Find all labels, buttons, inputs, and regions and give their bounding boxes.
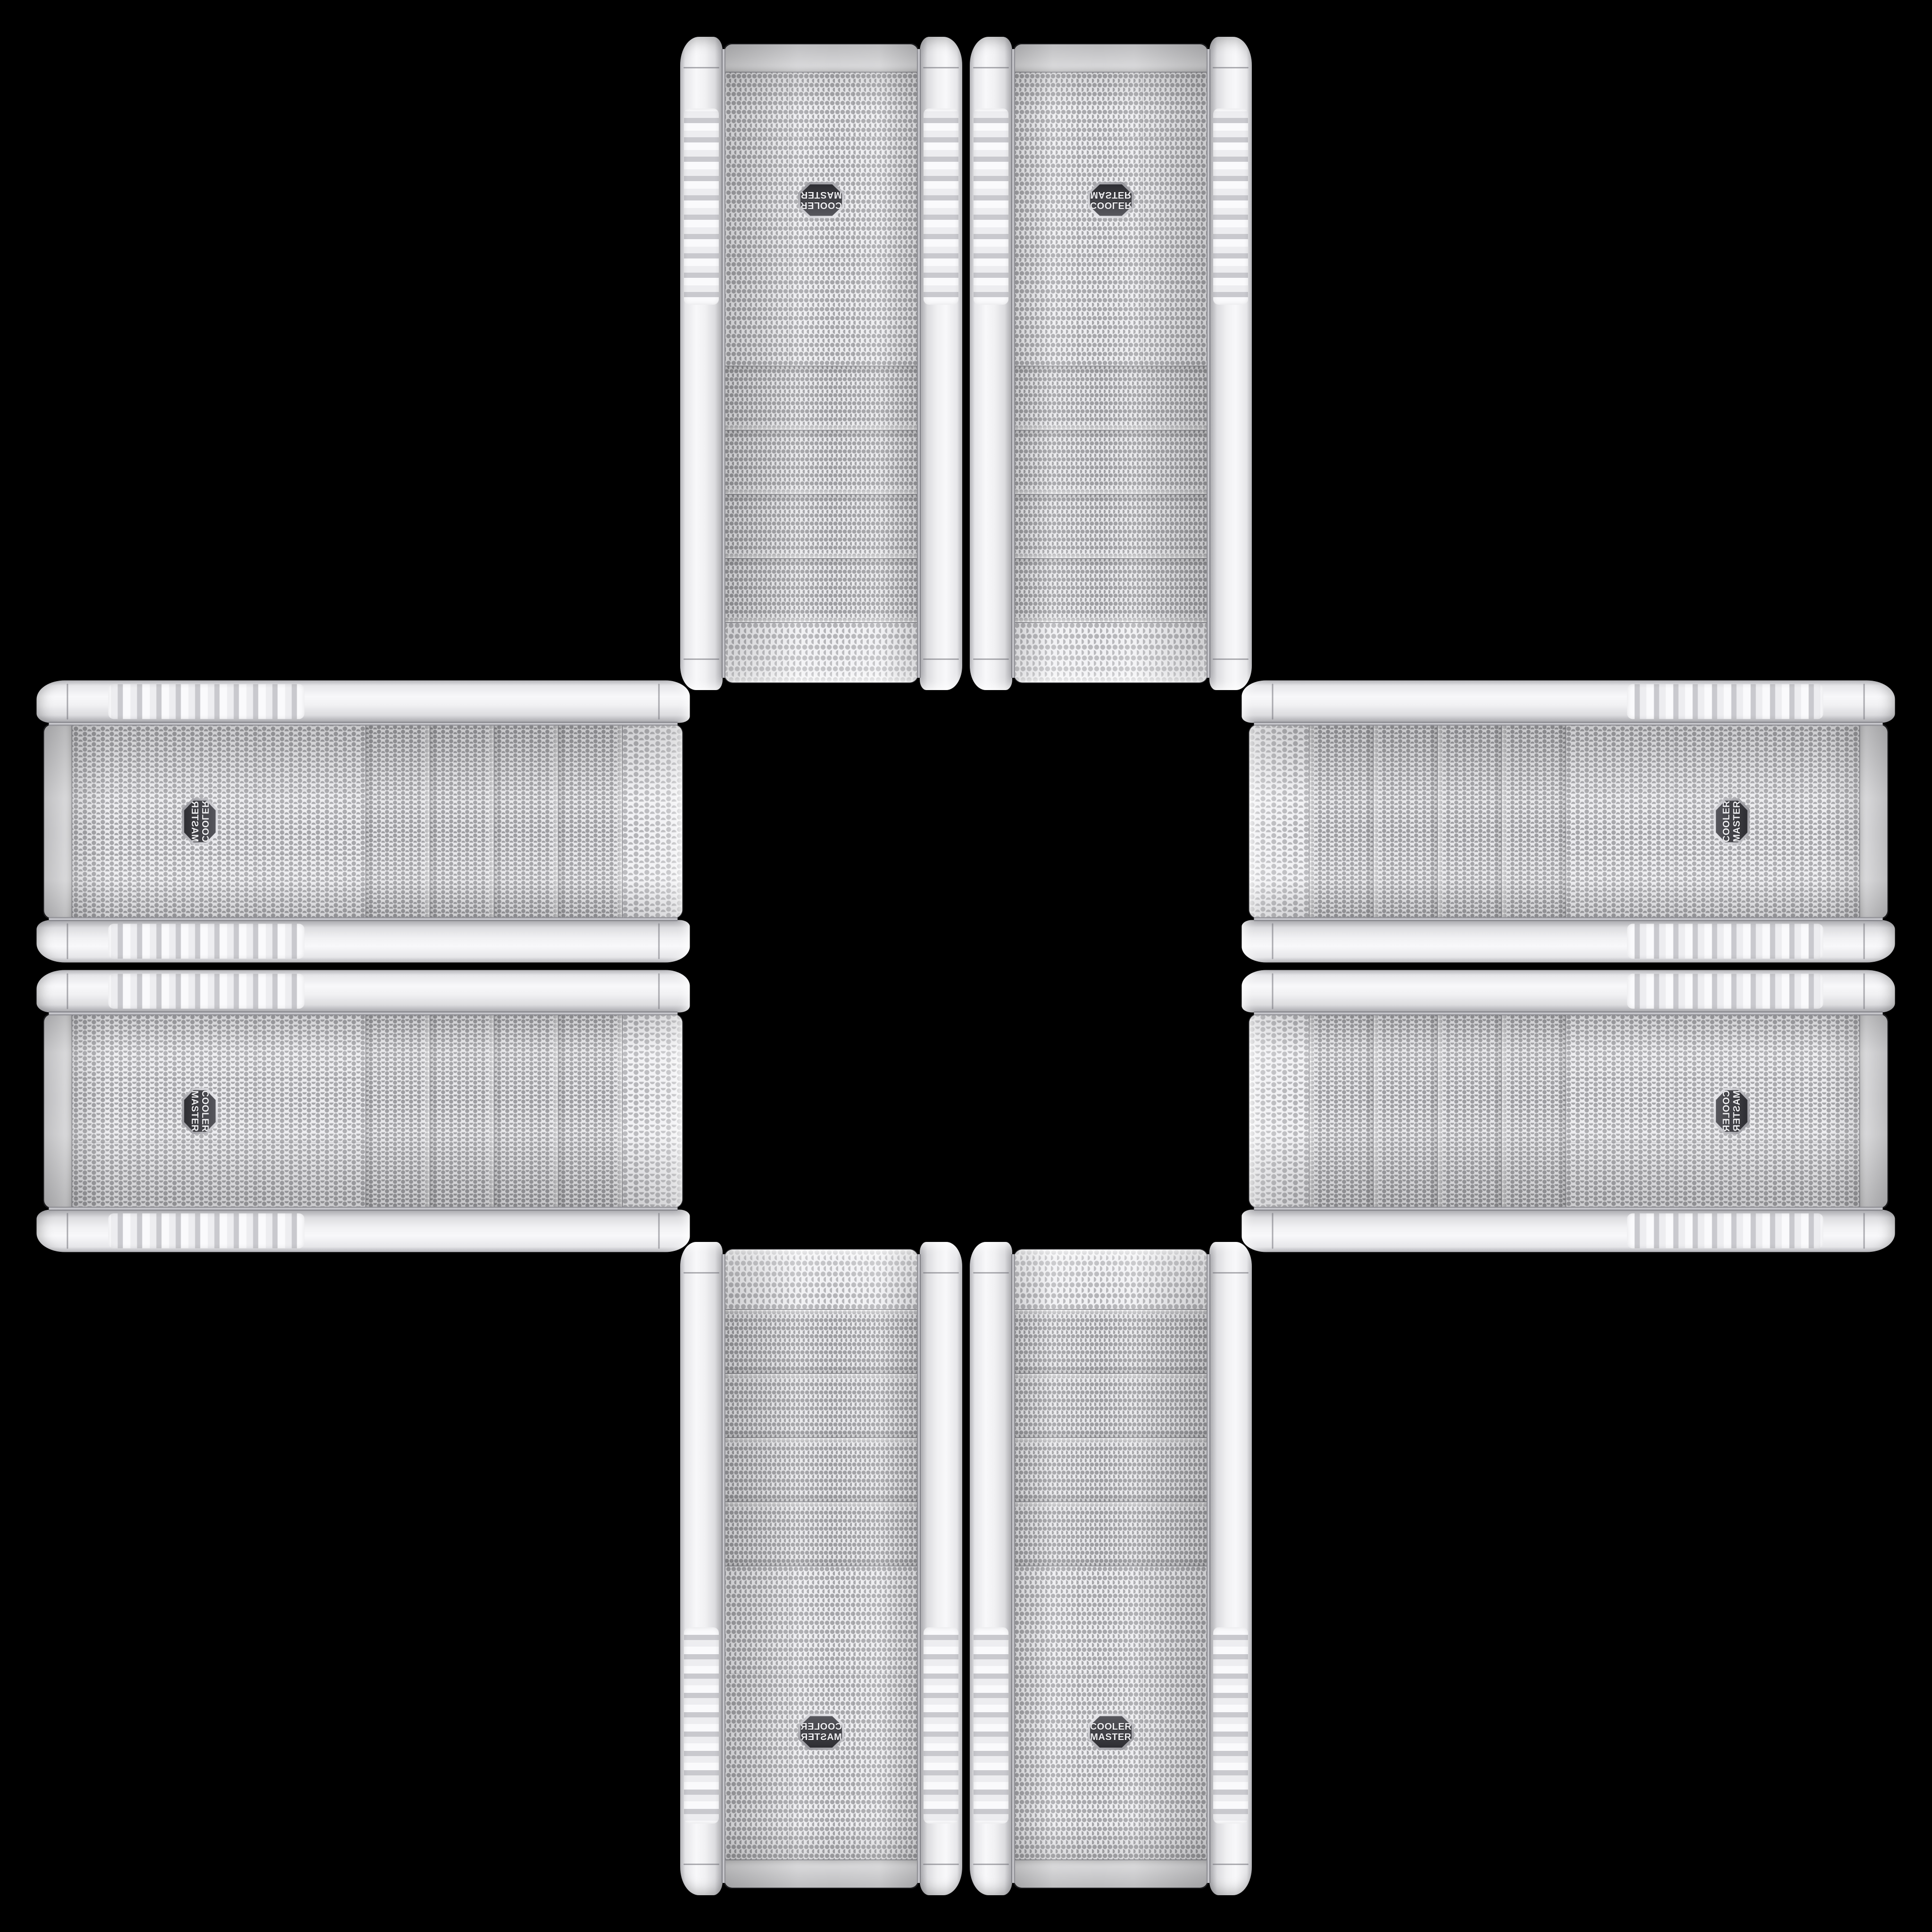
chrome-trim-right <box>722 49 725 678</box>
rail-cap-seam <box>1213 1272 1249 1274</box>
rail-cap-seam <box>973 658 1009 660</box>
pc-case-bottom-left: COOLER MASTER <box>680 1242 962 1895</box>
drive-bay-cover <box>559 1015 623 1208</box>
cooler-master-badge: COOLER MASTER <box>798 182 845 218</box>
cooler-master-badge: COOLER MASTER <box>1087 182 1134 218</box>
side-rail-right <box>1242 1210 1895 1252</box>
mesh-seam-vertical <box>1566 790 1859 791</box>
drive-bay-cover <box>431 1015 495 1208</box>
rail-cap-seam <box>1864 924 1865 959</box>
chrome-trim-right <box>1207 49 1210 678</box>
bottom-bezel <box>44 1015 73 1208</box>
rail-grip-ribs <box>1213 1627 1248 1824</box>
top-mesh-cap <box>623 1015 683 1208</box>
rail-grip-ribs <box>924 1627 958 1824</box>
drive-bay-cover <box>1501 1015 1565 1208</box>
badge-text-line1: COOLER <box>1090 200 1132 210</box>
drive-bay-cover <box>724 1501 918 1566</box>
rail-grip-ribs <box>1627 684 1824 719</box>
mesh-seam-vertical <box>1566 1078 1859 1079</box>
rail-cap-seam <box>923 1272 959 1274</box>
top-mesh-cap <box>724 623 918 683</box>
pc-case-bottom-right: COOLER MASTER <box>970 1242 1252 1895</box>
drive-bay-cover <box>724 1309 918 1373</box>
chrome-trim-left <box>1011 49 1015 678</box>
chrome-trim-left <box>1254 917 1883 921</box>
badge-hexagon: COOLER MASTER <box>1090 1716 1132 1748</box>
rail-grip-ribs <box>1627 1214 1824 1249</box>
rail-grip-ribs <box>1627 924 1824 959</box>
badge-hexagon: COOLER MASTER <box>1090 184 1132 216</box>
top-mesh-cap <box>724 1249 918 1309</box>
badge-text-line1: COOLER <box>1090 1722 1132 1732</box>
drive-bay-cover <box>1014 1501 1207 1566</box>
side-rail-right <box>1209 37 1252 690</box>
front-panel <box>1249 1015 1888 1208</box>
chrome-trim-left <box>1254 1012 1883 1016</box>
mesh-seam-horizontal <box>724 1673 918 1674</box>
cooler-master-badge: COOLER MASTER <box>182 1088 218 1135</box>
side-rail-right <box>37 681 690 723</box>
rail-cap-seam <box>1272 1213 1274 1249</box>
badge-text-line2: MASTER <box>800 190 841 200</box>
rail-cap-seam <box>67 974 68 1009</box>
rail-cap-seam <box>67 684 68 720</box>
pc-case-right-bottom: COOLER MASTER <box>1242 970 1895 1252</box>
front-mesh <box>1014 1566 1207 1859</box>
side-rail-left <box>970 37 1012 690</box>
badge-text-line1: COOLER <box>200 800 210 842</box>
collage-canvas: COOLER MASTER <box>0 0 1932 1932</box>
bottom-bezel <box>1859 725 1887 918</box>
badge-text-line2: MASTER <box>1732 801 1742 842</box>
cooler-master-badge: COOLER MASTER <box>1713 798 1750 845</box>
drive-bay-cover <box>1373 1015 1437 1208</box>
bottom-bezel <box>1014 44 1207 73</box>
rail-grip-ribs <box>108 924 305 959</box>
mesh-seam-vertical <box>1078 1566 1079 1859</box>
rail-cap-seam <box>658 684 660 720</box>
front-mesh <box>724 1566 918 1859</box>
side-rail-left <box>37 970 690 1013</box>
rail-cap-seam <box>1272 684 1274 720</box>
mesh-seam-horizontal <box>1014 258 1207 259</box>
drive-bay-cover <box>1437 1015 1501 1208</box>
mesh-seam-horizontal <box>724 258 918 259</box>
rail-cap-seam <box>973 1864 1009 1865</box>
chrome-trim-left <box>49 1012 678 1016</box>
mesh-seam-horizontal <box>1673 1015 1674 1208</box>
badge-hexagon: COOLER MASTER <box>184 800 216 843</box>
rail-cap-seam <box>658 924 660 959</box>
rail-cap-seam <box>923 1864 959 1865</box>
rail-cap-seam <box>1213 1864 1249 1865</box>
rail-cap-seam <box>683 1864 719 1865</box>
rail-grip-ribs <box>924 108 958 305</box>
front-panel <box>1014 44 1207 683</box>
drive-bay-cover <box>1437 725 1501 918</box>
side-rail-left <box>37 920 690 963</box>
drive-bay-cover <box>724 495 918 559</box>
rail-cap-seam <box>973 67 1009 68</box>
rail-cap-seam <box>923 658 959 660</box>
mesh-seam-horizontal <box>258 725 258 918</box>
mesh-seam-vertical <box>1142 1566 1143 1859</box>
chrome-trim-left <box>1011 1254 1015 1883</box>
front-panel <box>724 1249 918 1888</box>
drive-bay-cover <box>1308 1015 1373 1208</box>
badge-text-line2: MASTER <box>190 1091 200 1132</box>
cooler-master-badge: COOLER MASTER <box>1087 1714 1134 1750</box>
front-mesh <box>1014 73 1207 366</box>
drive-bay-cover <box>559 725 623 918</box>
side-rail-left <box>920 37 962 690</box>
pc-case-left-top: COOLER MASTER <box>37 681 690 963</box>
bottom-bezel <box>44 725 73 918</box>
side-rail-left <box>920 1242 962 1895</box>
rail-cap-seam <box>973 1272 1009 1274</box>
mesh-seam-vertical <box>73 1142 366 1143</box>
drive-bay-cover <box>1373 725 1437 918</box>
rail-cap-seam <box>1864 1213 1865 1249</box>
mesh-seam-horizontal <box>724 1795 918 1796</box>
rail-cap-seam <box>923 67 959 68</box>
rail-cap-seam <box>67 1213 68 1249</box>
rail-cap-seam <box>683 658 719 660</box>
rail-cap-seam <box>1864 684 1865 720</box>
chrome-trim-left <box>49 917 678 921</box>
rail-cap-seam <box>67 924 68 959</box>
rail-grip-ribs <box>1213 108 1248 305</box>
rail-cap-seam <box>1213 658 1249 660</box>
mesh-seam-horizontal <box>136 1015 137 1208</box>
rail-cap-seam <box>1272 974 1274 1009</box>
mesh-seam-vertical <box>789 1566 790 1859</box>
badge-hexagon: COOLER MASTER <box>800 184 842 216</box>
mesh-seam-horizontal <box>1014 136 1207 137</box>
rail-grip-ribs <box>684 1627 719 1824</box>
cooler-master-badge: COOLER MASTER <box>1713 1088 1750 1135</box>
pc-case-right-top: COOLER MASTER <box>1242 681 1895 963</box>
mesh-seam-vertical <box>789 73 790 366</box>
chrome-trim-right <box>1207 1254 1210 1883</box>
top-mesh-cap <box>1249 725 1309 918</box>
side-rail-left <box>970 1242 1012 1895</box>
rail-grip-ribs <box>1627 974 1824 1009</box>
drive-bay-cover <box>1014 366 1207 431</box>
front-panel <box>1249 725 1888 918</box>
mesh-seam-vertical <box>73 853 366 854</box>
front-mesh <box>1565 725 1859 918</box>
chrome-trim-right <box>49 722 678 726</box>
chrome-trim-left <box>917 1254 921 1883</box>
rail-cap-seam <box>683 1272 719 1274</box>
front-mesh <box>73 1015 366 1208</box>
badge-text-line1: COOLER <box>200 1090 210 1132</box>
drive-bay-cover <box>1014 1437 1207 1501</box>
mesh-seam-vertical <box>1566 1142 1859 1143</box>
mesh-seam-vertical <box>73 1078 366 1079</box>
top-mesh-cap <box>1014 623 1207 683</box>
rail-cap-seam <box>1864 974 1865 1009</box>
drive-bay-cover <box>431 725 495 918</box>
bottom-bezel <box>724 44 918 73</box>
side-rail-left <box>1242 920 1895 963</box>
cooler-master-badge: COOLER MASTER <box>182 798 218 845</box>
rail-grip-ribs <box>974 1627 1008 1824</box>
side-rail-right <box>680 1242 723 1895</box>
mesh-seam-horizontal <box>1014 1673 1207 1674</box>
drive-bay-cover <box>1308 725 1373 918</box>
front-panel <box>44 1015 683 1208</box>
badge-hexagon: COOLER MASTER <box>184 1090 216 1133</box>
rail-cap-seam <box>1272 924 1274 959</box>
mesh-seam-vertical <box>1078 73 1079 366</box>
pc-case-top-right: COOLER MASTER <box>970 37 1252 690</box>
drive-bay-cover <box>366 1015 431 1208</box>
mesh-seam-vertical <box>1142 73 1143 366</box>
drive-bay-cover <box>724 1437 918 1501</box>
badge-text-line1: COOLER <box>800 1722 842 1732</box>
badge-text-line1: COOLER <box>800 200 842 210</box>
drive-bay-cover <box>724 559 918 623</box>
badge-text-line2: MASTER <box>190 801 200 842</box>
badge-text-line2: MASTER <box>1090 1732 1131 1742</box>
mesh-seam-horizontal <box>1795 725 1796 918</box>
chrome-trim-right <box>1254 1207 1883 1211</box>
top-mesh-cap <box>1249 1015 1309 1208</box>
drive-bay-cover <box>495 725 559 918</box>
mesh-seam-vertical <box>73 790 366 791</box>
top-mesh-cap <box>623 725 683 918</box>
drive-bay-cover <box>724 366 918 431</box>
front-mesh <box>73 725 366 918</box>
mesh-seam-horizontal <box>1673 725 1674 918</box>
badge-hexagon: COOLER MASTER <box>800 1716 842 1748</box>
drive-bay-cover <box>1014 559 1207 623</box>
pc-case-left-bottom: COOLER MASTER <box>37 970 690 1252</box>
badge-text-line2: MASTER <box>800 1732 841 1742</box>
drive-bay-cover <box>1501 725 1565 918</box>
side-rail-right <box>1242 681 1895 723</box>
mesh-seam-horizontal <box>1014 1795 1207 1796</box>
drive-bay-cover <box>495 1015 559 1208</box>
chrome-trim-right <box>49 1207 678 1211</box>
badge-text-line2: MASTER <box>1732 1091 1742 1132</box>
drive-bay-cover <box>1014 431 1207 495</box>
bottom-bezel <box>1014 1859 1207 1888</box>
bottom-bezel <box>724 1859 918 1888</box>
badge-hexagon: COOLER MASTER <box>1715 800 1748 843</box>
cooler-master-badge: COOLER MASTER <box>798 1714 845 1750</box>
chrome-trim-right <box>1254 722 1883 726</box>
side-rail-left <box>1242 970 1895 1013</box>
front-panel <box>1014 1249 1207 1888</box>
badge-text-line2: MASTER <box>1090 190 1131 200</box>
rail-grip-ribs <box>108 1214 305 1249</box>
bottom-bezel <box>1859 1015 1887 1208</box>
badge-text-line1: COOLER <box>1721 1090 1732 1132</box>
mesh-seam-horizontal <box>136 725 137 918</box>
rail-cap-seam <box>683 67 719 68</box>
chrome-trim-right <box>722 1254 725 1883</box>
front-mesh <box>724 73 918 366</box>
mesh-seam-horizontal <box>724 136 918 137</box>
drive-bay-cover <box>1014 495 1207 559</box>
mesh-seam-vertical <box>853 73 854 366</box>
mesh-seam-horizontal <box>1795 1015 1796 1208</box>
side-rail-right <box>680 37 723 690</box>
drive-bay-cover <box>366 725 431 918</box>
drive-bay-cover <box>724 431 918 495</box>
mesh-seam-vertical <box>1566 853 1859 854</box>
rail-grip-ribs <box>108 974 305 1009</box>
side-rail-right <box>37 1210 690 1252</box>
drive-bay-cover <box>1014 1373 1207 1437</box>
drive-bay-cover <box>1014 1309 1207 1373</box>
front-panel <box>724 44 918 683</box>
rail-cap-seam <box>1213 67 1249 68</box>
rail-grip-ribs <box>108 684 305 719</box>
side-rail-right <box>1209 1242 1252 1895</box>
mesh-seam-vertical <box>853 1566 854 1859</box>
rail-grip-ribs <box>974 108 1008 305</box>
drive-bay-cover <box>724 1373 918 1437</box>
pc-case-top-left: COOLER MASTER <box>680 37 962 690</box>
top-mesh-cap <box>1014 1249 1207 1309</box>
rail-cap-seam <box>658 974 660 1009</box>
front-panel <box>44 725 683 918</box>
rail-cap-seam <box>658 1213 660 1249</box>
mesh-seam-horizontal <box>258 1015 258 1208</box>
badge-hexagon: COOLER MASTER <box>1715 1090 1748 1133</box>
chrome-trim-left <box>917 49 921 678</box>
front-mesh <box>1565 1015 1859 1208</box>
badge-text-line1: COOLER <box>1721 800 1732 842</box>
rail-grip-ribs <box>684 108 719 305</box>
